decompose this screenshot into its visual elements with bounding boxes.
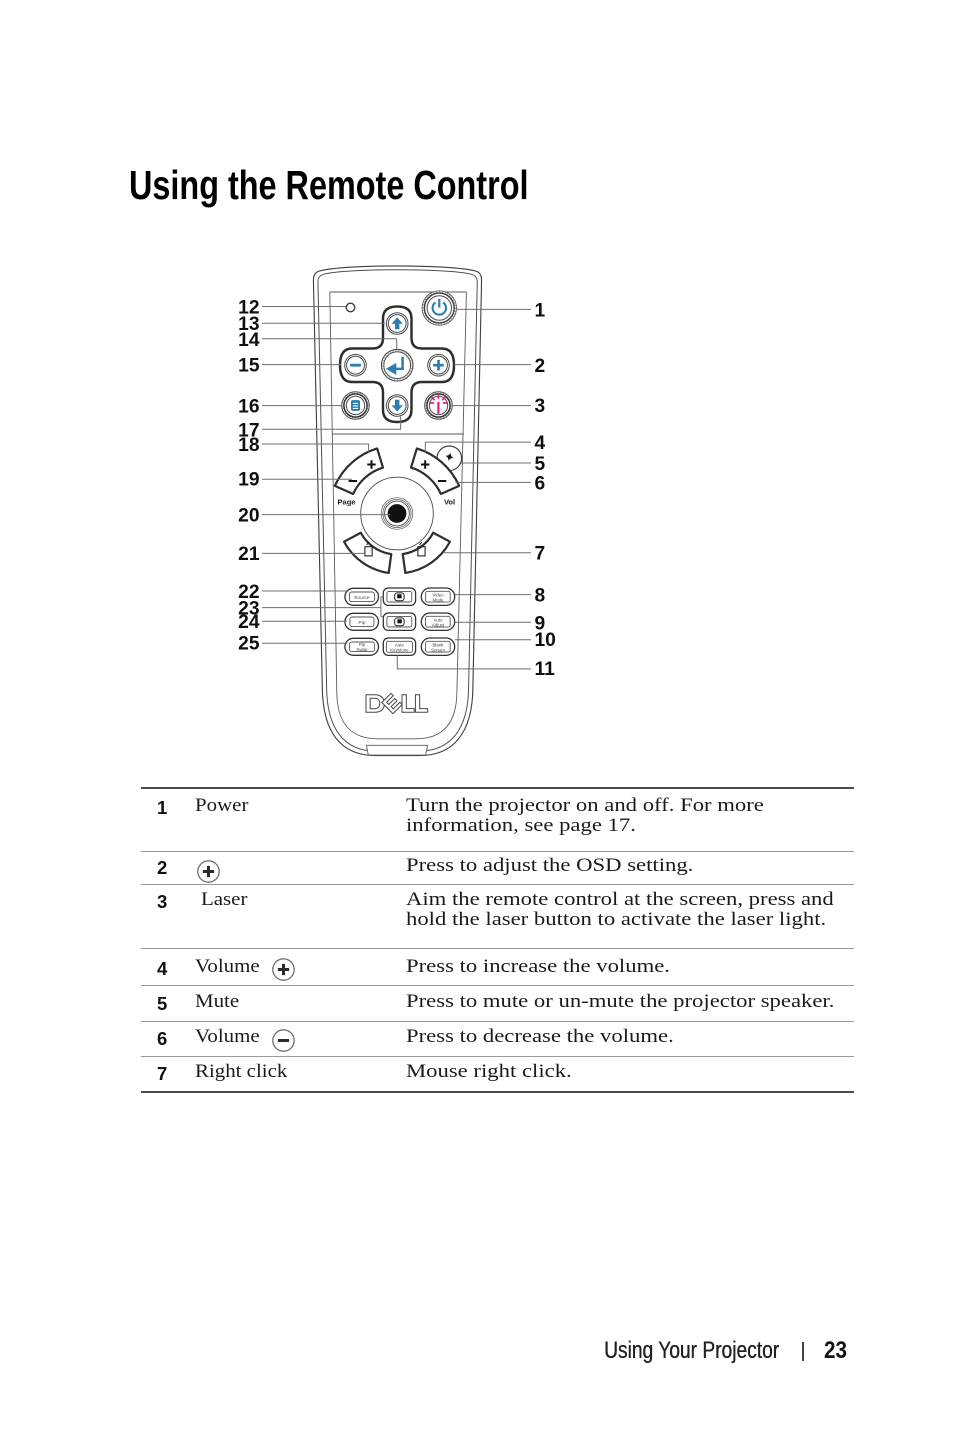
svg-text:8: 8	[535, 586, 546, 607]
svg-text:Vol: Vol	[444, 498, 455, 507]
svg-text:Adjust: Adjust	[432, 622, 445, 627]
svg-text:5: 5	[535, 454, 546, 475]
svg-text:24: 24	[238, 612, 260, 633]
svg-text:14: 14	[238, 330, 260, 351]
svg-text:15: 15	[238, 356, 260, 377]
svg-text:Page: Page	[338, 498, 356, 507]
svg-text:6: 6	[535, 474, 546, 495]
svg-text:10: 10	[535, 630, 556, 651]
svg-text:25: 25	[238, 633, 260, 654]
svg-text:20: 20	[238, 506, 259, 527]
svg-text:Source: Source	[354, 595, 370, 601]
svg-text:19: 19	[238, 470, 259, 491]
svg-text:2: 2	[535, 356, 546, 377]
svg-text:11: 11	[535, 659, 556, 680]
svg-text:Pip: Pip	[358, 620, 365, 626]
svg-text:1: 1	[535, 300, 546, 321]
svg-text:Swap: Swap	[356, 647, 368, 652]
svg-text:Screen: Screen	[431, 647, 445, 652]
svg-text:4: 4	[535, 433, 546, 454]
svg-text:Keystone: Keystone	[390, 647, 409, 652]
svg-text:18: 18	[238, 435, 260, 456]
svg-text:16: 16	[238, 397, 259, 418]
svg-text:21: 21	[238, 544, 260, 565]
svg-text:Mode: Mode	[433, 597, 445, 602]
svg-text:7: 7	[535, 544, 546, 565]
svg-text:3: 3	[535, 396, 546, 417]
